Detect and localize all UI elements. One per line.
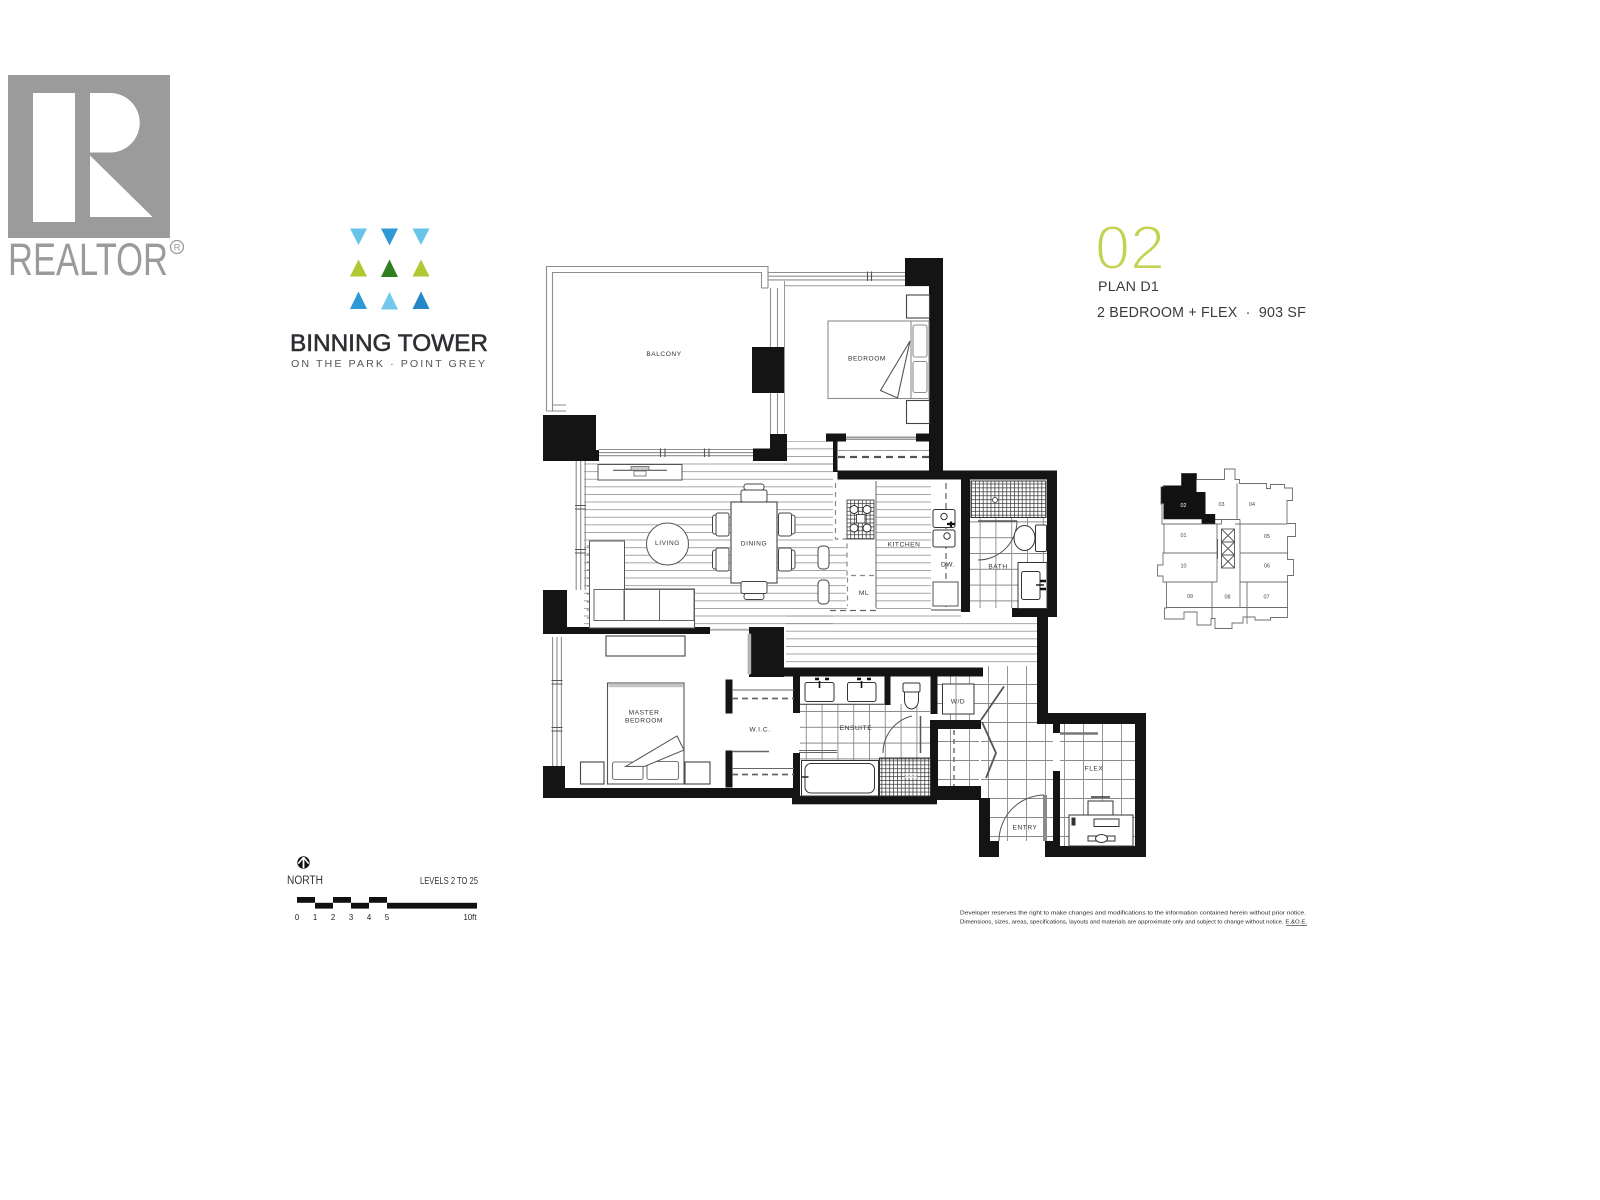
svg-text:4: 4 bbox=[367, 913, 372, 922]
svg-text:W.I.C.: W.I.C. bbox=[749, 727, 770, 734]
svg-text:LEVELS 2 TO 25: LEVELS 2 TO 25 bbox=[420, 875, 478, 887]
svg-text:BEDROOM: BEDROOM bbox=[625, 718, 663, 725]
svg-text:MASTER: MASTER bbox=[629, 710, 660, 717]
svg-text:04: 04 bbox=[1249, 502, 1255, 508]
svg-text:02: 02 bbox=[1181, 503, 1187, 509]
svg-text:2 BEDROOM + FLEX · 903 SF: 2 BEDROOM + FLEX · 903 SF bbox=[1097, 305, 1306, 321]
svg-text:0: 0 bbox=[295, 913, 300, 922]
svg-text:3: 3 bbox=[349, 913, 353, 922]
svg-text:PLAN D1: PLAN D1 bbox=[1098, 279, 1159, 294]
svg-text:LIVING: LIVING bbox=[655, 540, 680, 547]
svg-text:BEDROOM: BEDROOM bbox=[848, 356, 886, 363]
svg-text:BATH: BATH bbox=[988, 564, 1007, 571]
svg-text:ENSUITE: ENSUITE bbox=[840, 725, 872, 732]
svg-text:5: 5 bbox=[385, 913, 390, 922]
svg-text:10ft: 10ft bbox=[463, 913, 477, 922]
svg-text:2: 2 bbox=[331, 913, 335, 922]
svg-text:DINING: DINING bbox=[741, 541, 767, 548]
svg-text:06: 06 bbox=[1264, 564, 1270, 570]
svg-text:10: 10 bbox=[1181, 564, 1187, 570]
svg-text:ML: ML bbox=[859, 590, 869, 597]
svg-text:Developer reserves the right t: Developer reserves the right to make cha… bbox=[960, 911, 1306, 917]
svg-text:01: 01 bbox=[1181, 533, 1187, 539]
svg-text:BALCONY: BALCONY bbox=[646, 351, 681, 358]
svg-text:05: 05 bbox=[1264, 534, 1270, 540]
svg-text:DW.: DW. bbox=[941, 562, 955, 569]
svg-text:03: 03 bbox=[1219, 502, 1225, 508]
svg-text:W/D: W/D bbox=[951, 699, 965, 706]
svg-text:REALTOR: REALTOR bbox=[8, 234, 168, 285]
svg-text:R: R bbox=[174, 243, 181, 254]
svg-text:08: 08 bbox=[1225, 595, 1231, 601]
svg-text:ON THE PARK · POINT GREY: ON THE PARK · POINT GREY bbox=[291, 358, 487, 370]
svg-text:ENTRY: ENTRY bbox=[1013, 825, 1038, 832]
svg-text:07: 07 bbox=[1264, 595, 1270, 601]
svg-text:BINNING TOWER: BINNING TOWER bbox=[290, 330, 488, 357]
svg-text:02: 02 bbox=[1095, 214, 1165, 283]
svg-text:NORTH: NORTH bbox=[287, 875, 323, 887]
svg-text:KITCHEN: KITCHEN bbox=[888, 542, 921, 549]
svg-text:1: 1 bbox=[313, 913, 317, 922]
svg-text:09: 09 bbox=[1187, 594, 1193, 600]
svg-text:FLEX: FLEX bbox=[1085, 766, 1104, 773]
svg-text:Dimensions, sizes, areas, spec: Dimensions, sizes, areas, specifications… bbox=[960, 920, 1307, 926]
